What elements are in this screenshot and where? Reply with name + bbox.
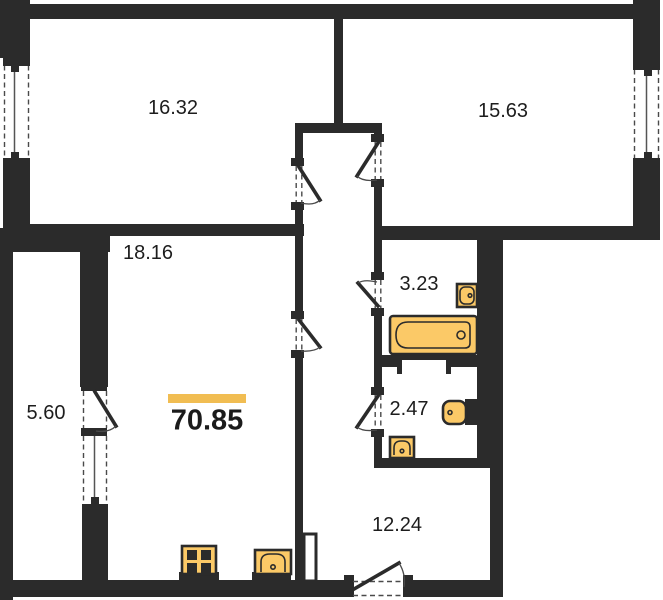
door-bathroom (358, 272, 384, 316)
window-balcony (82, 436, 108, 513)
wall (397, 360, 402, 374)
area-label-room-top-left: 16.32 (148, 98, 198, 118)
wall (3, 4, 660, 19)
wall (633, 166, 660, 240)
wall (82, 511, 108, 582)
toilet-washbasin (390, 437, 414, 458)
wall (374, 226, 660, 240)
stove (182, 546, 216, 574)
wall (28, 224, 304, 236)
wall (80, 230, 108, 387)
toilet-bowl (443, 399, 477, 425)
wall-niche (402, 360, 446, 374)
wall (374, 458, 477, 468)
door-room-top-left (291, 158, 320, 210)
total-area-label: 70.85 (171, 407, 244, 436)
floor-plan: 16.32 15.63 18.16 5.60 3.23 2.47 12.24 7… (0, 0, 663, 600)
door-entrance (344, 563, 413, 597)
wall (295, 202, 303, 319)
kitchen-sink (255, 550, 291, 574)
wall (0, 230, 13, 600)
bathroom-washbasin (457, 284, 477, 307)
area-label-hall-kitchen: 12.24 (372, 515, 422, 535)
wall (3, 166, 30, 232)
door-balcony (81, 383, 116, 436)
total-area-accent-bar (168, 394, 246, 403)
wall (446, 360, 451, 374)
wall (295, 123, 382, 133)
wall (0, 580, 353, 597)
area-label-balcony: 5.60 (27, 403, 66, 423)
area-label-room-top-right: 15.63 (478, 101, 528, 121)
floor-plan-drawing (0, 0, 663, 600)
wall (477, 240, 503, 468)
wall (404, 580, 503, 597)
door-living-room (291, 311, 320, 358)
duct-stub (304, 534, 316, 581)
wall (0, 0, 30, 58)
wall (374, 316, 382, 387)
window-left (3, 57, 30, 167)
area-label-toilet: 2.47 (390, 399, 429, 419)
door-room-top-right (357, 134, 384, 187)
area-label-bathroom: 3.23 (400, 274, 439, 294)
window-right (633, 61, 660, 167)
wall (295, 350, 303, 582)
door-toilet (357, 387, 384, 437)
wall (490, 468, 503, 597)
bathtub (390, 316, 477, 354)
doors (81, 134, 413, 597)
wall (334, 19, 343, 124)
wall (633, 0, 660, 62)
area-label-living-room: 18.16 (123, 243, 173, 263)
